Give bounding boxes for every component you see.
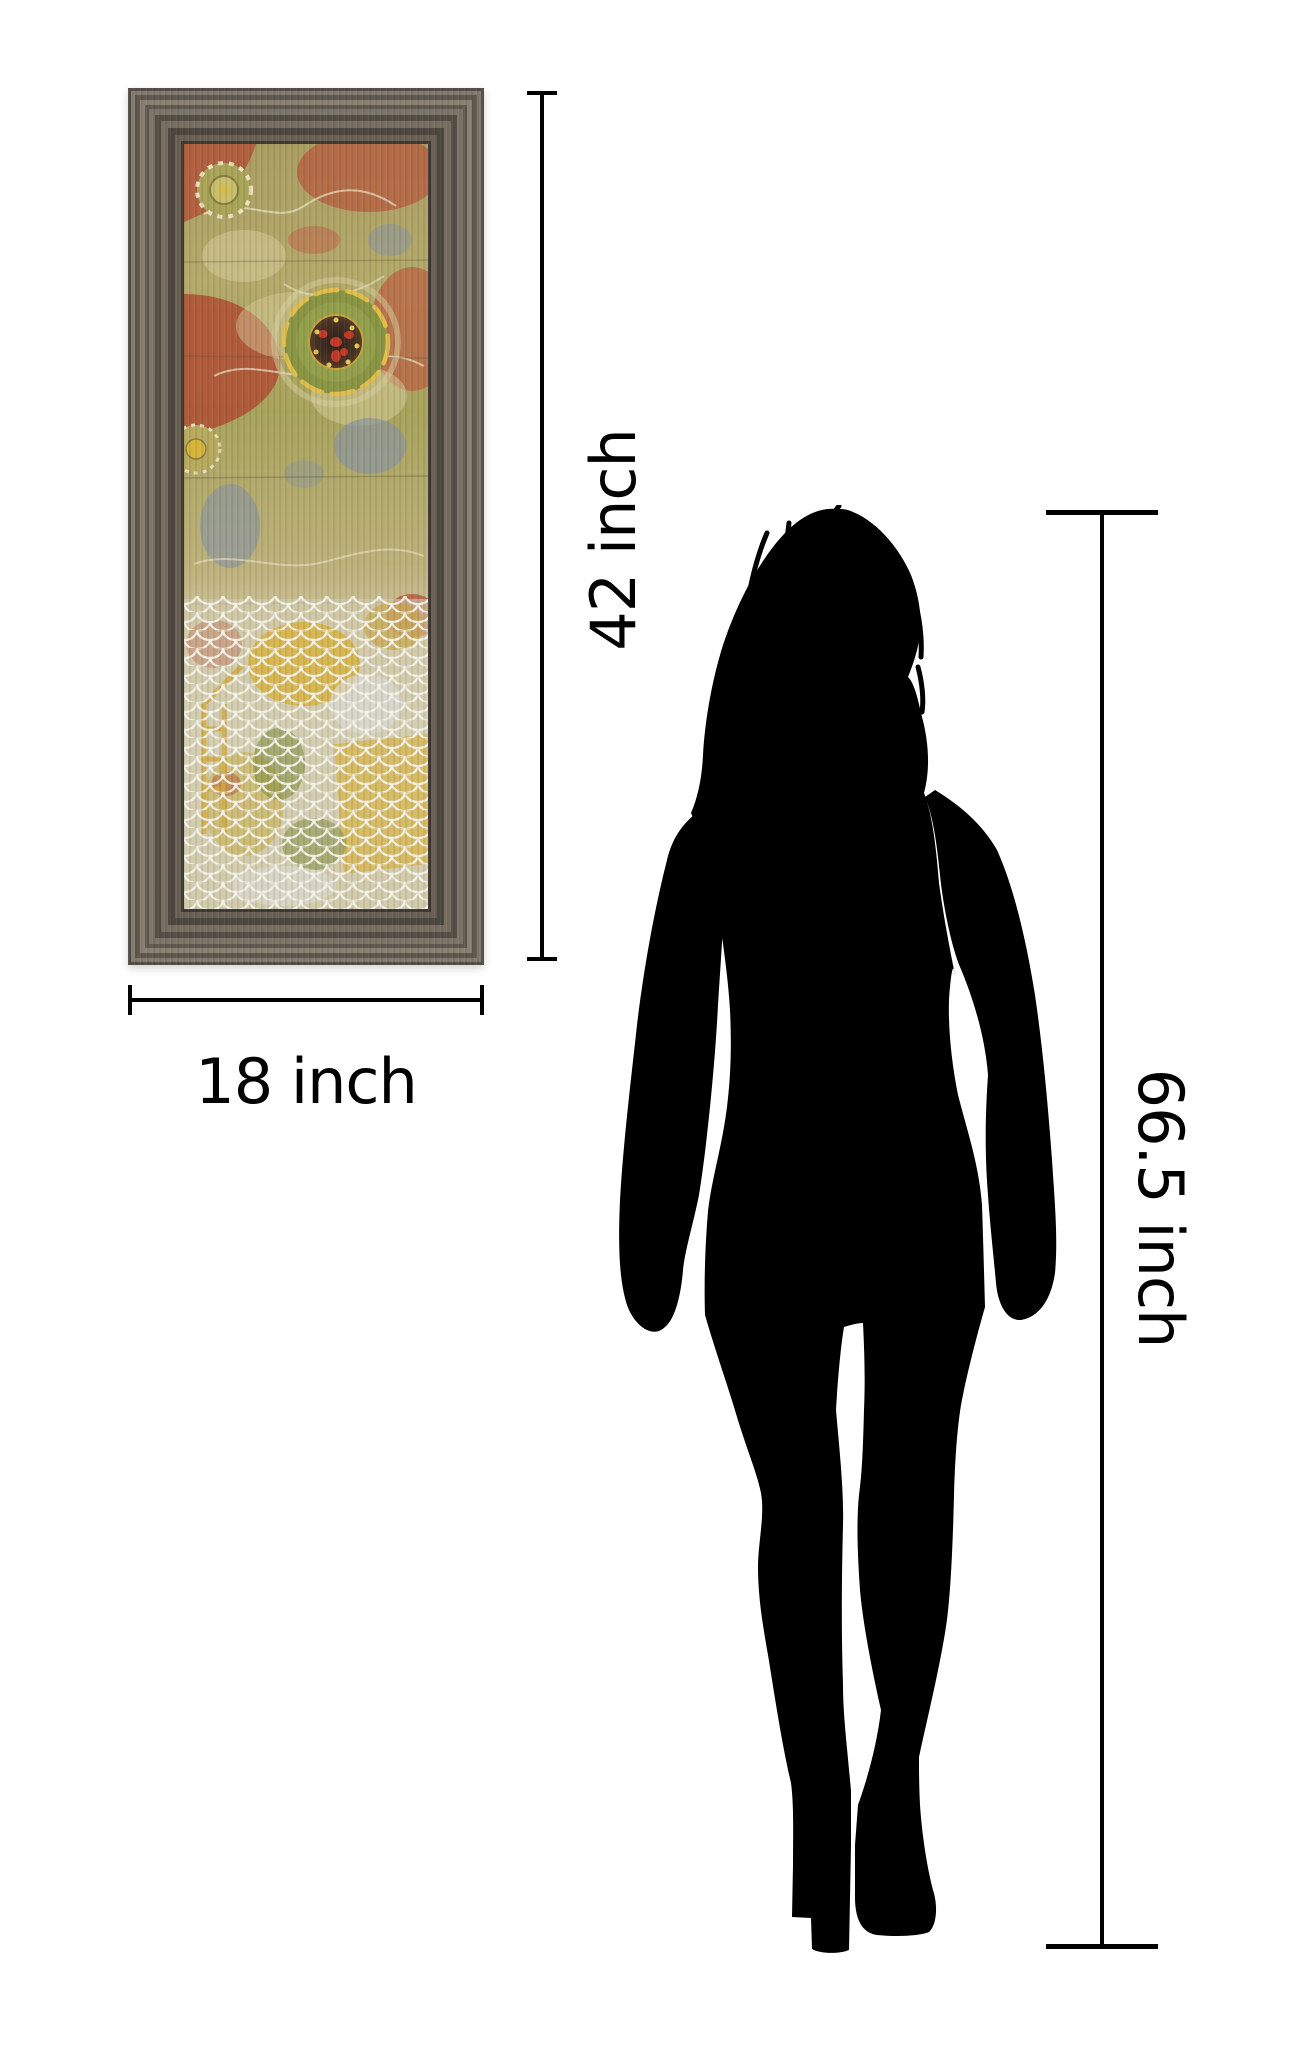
abstract-floral-art xyxy=(184,144,428,909)
person-height-label: 66.5 inch xyxy=(1129,1069,1191,1348)
framed-artwork xyxy=(128,88,484,965)
artwork-width-tick-left xyxy=(128,985,132,1015)
artwork-width-label: 18 inch xyxy=(195,1051,417,1113)
artwork-height-dimension-line xyxy=(540,92,544,960)
flower-motif xyxy=(274,280,398,404)
person-height-tick-top xyxy=(1046,510,1158,515)
artwork-canvas xyxy=(184,144,428,909)
artwork-height-tick-top xyxy=(527,91,557,95)
size-comparison-canvas: 42 inch 18 inch xyxy=(0,0,1296,2048)
artwork-width-tick-right xyxy=(480,985,484,1015)
person-height-dimension-line xyxy=(1100,511,1104,1948)
artwork-width-dimension-line xyxy=(129,998,483,1002)
artwork-height-tick-bottom xyxy=(527,957,557,961)
rosette-motif xyxy=(197,163,251,217)
woman-silhouette-icon xyxy=(615,505,1065,1955)
person-height-tick-bottom xyxy=(1046,1944,1158,1949)
